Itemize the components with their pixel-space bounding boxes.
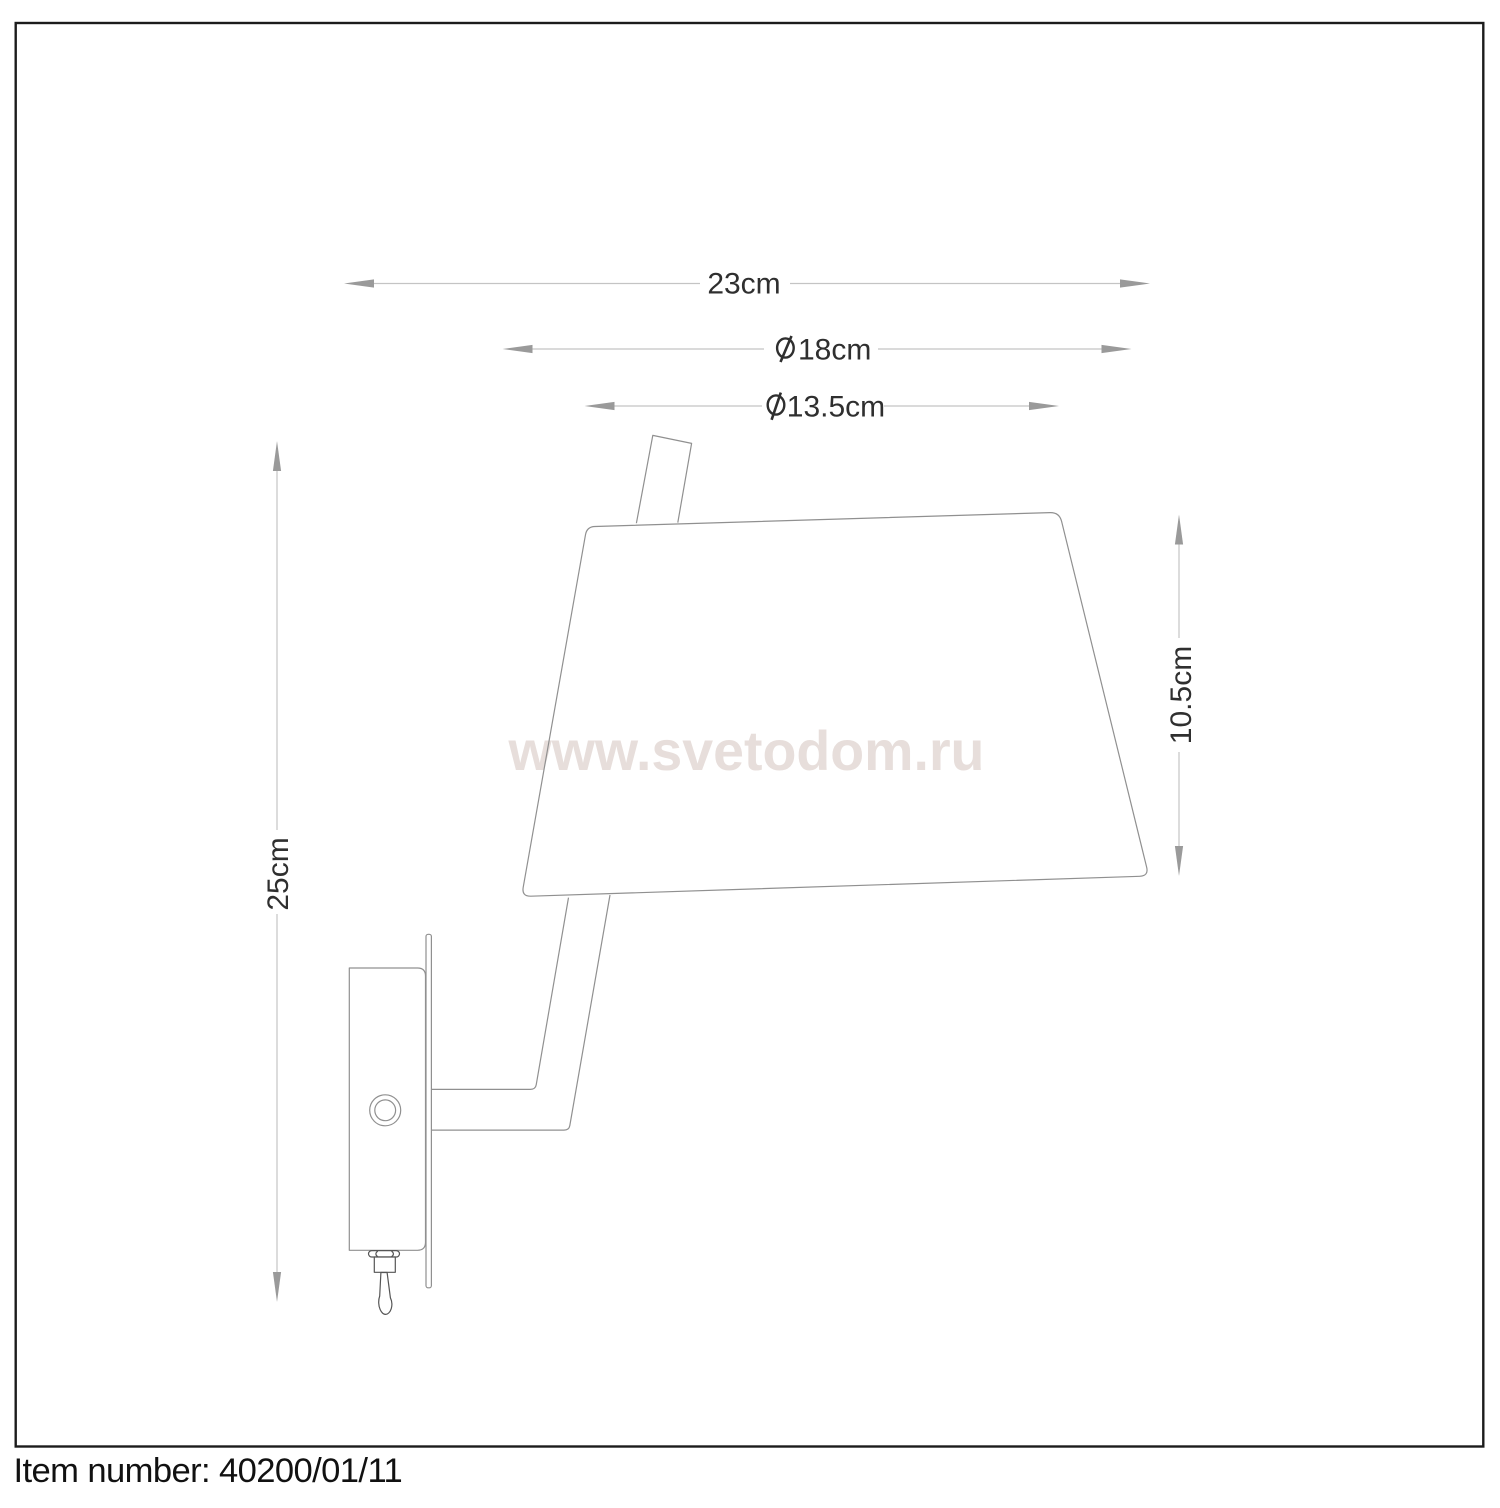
svg-text:23cm: 23cm	[707, 268, 780, 301]
svg-text:10.5cm: 10.5cm	[1165, 646, 1198, 744]
svg-text:18cm: 18cm	[798, 333, 871, 366]
svg-text:13.5cm: 13.5cm	[787, 390, 885, 423]
svg-text:25cm: 25cm	[262, 837, 295, 910]
svg-text:Item number: 40200/01/11: Item number: 40200/01/11	[14, 1452, 403, 1490]
svg-text:www.svetodom.ru: www.svetodom.ru	[508, 720, 985, 782]
